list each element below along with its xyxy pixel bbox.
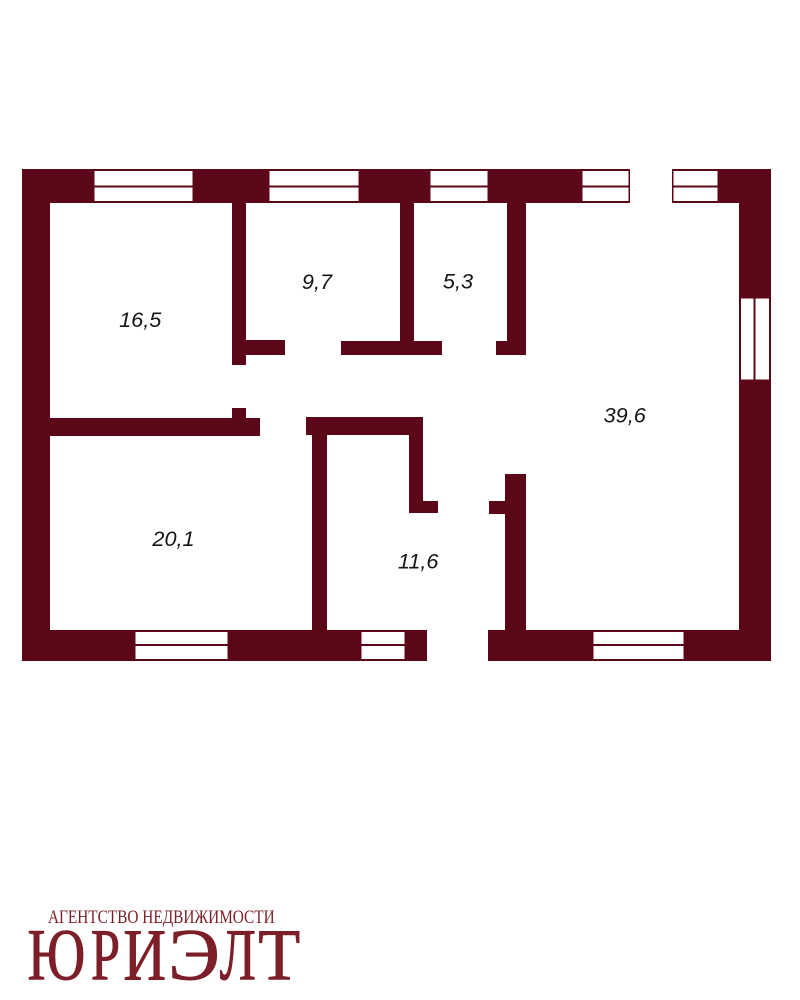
svg-text:Ю: Ю xyxy=(28,915,86,996)
svg-text:9,7: 9,7 xyxy=(302,269,333,294)
svg-text:Т: Т xyxy=(258,915,300,995)
svg-text:20,1: 20,1 xyxy=(151,526,194,551)
svg-text:И: И xyxy=(123,916,166,996)
svg-text:11,6: 11,6 xyxy=(398,549,440,574)
svg-text:5,3: 5,3 xyxy=(443,269,473,294)
svg-text:39,6: 39,6 xyxy=(604,402,647,427)
svg-text:16,5: 16,5 xyxy=(119,307,162,332)
svg-text:Л: Л xyxy=(220,914,256,995)
svg-text:Р: Р xyxy=(91,914,120,995)
svg-text:Э: Э xyxy=(168,916,220,996)
